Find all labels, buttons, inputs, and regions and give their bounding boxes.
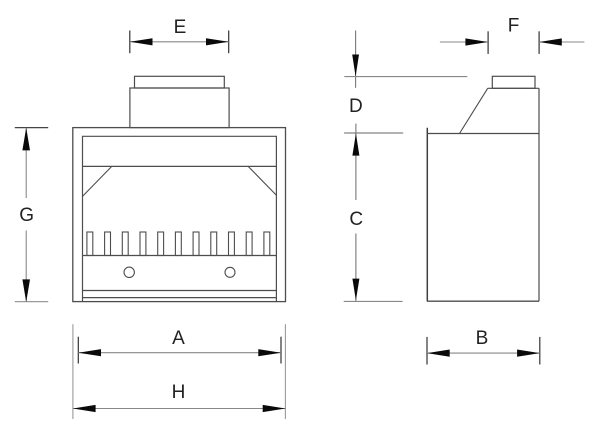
svg-text:C: C xyxy=(349,209,363,230)
svg-text:A: A xyxy=(172,328,185,349)
svg-text:D: D xyxy=(349,96,363,117)
svg-text:F: F xyxy=(508,16,520,37)
svg-text:G: G xyxy=(19,205,34,226)
svg-text:B: B xyxy=(476,328,489,349)
svg-text:E: E xyxy=(174,17,187,38)
svg-text:H: H xyxy=(172,382,186,403)
